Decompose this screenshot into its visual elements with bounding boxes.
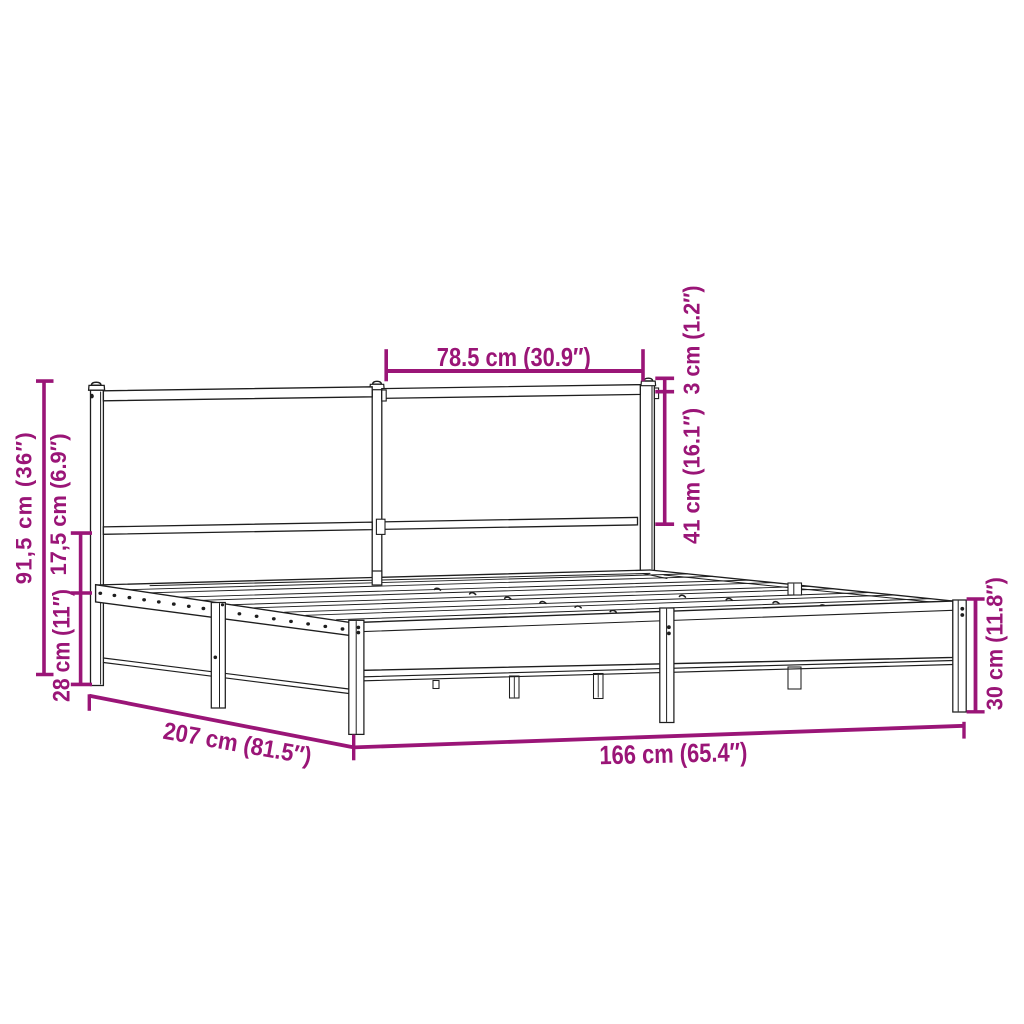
svg-text:91,5 cm (36″): 91,5 cm (36″) [12, 432, 37, 584]
svg-text:30 cm (11.8″): 30 cm (11.8″) [982, 577, 1008, 710]
svg-text:78.5 cm (30.9″): 78.5 cm (30.9″) [437, 342, 591, 372]
svg-text:28 cm (11″): 28 cm (11″) [49, 589, 76, 702]
svg-text:3 cm (1.2″): 3 cm (1.2″) [679, 286, 705, 395]
svg-text:17,5 cm (6.9″): 17,5 cm (6.9″) [46, 434, 71, 576]
svg-text:41 cm (16.1″): 41 cm (16.1″) [679, 408, 705, 544]
svg-text:166 cm (65.4″): 166 cm (65.4″) [599, 737, 748, 770]
